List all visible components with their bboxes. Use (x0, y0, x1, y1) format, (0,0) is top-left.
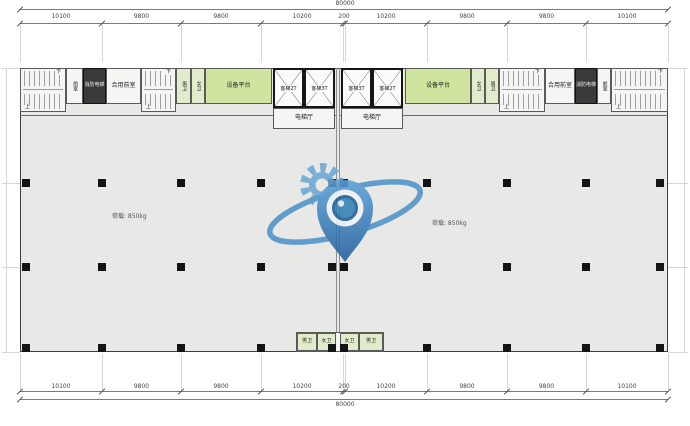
elevator-hall-label: 电梯厅 (363, 115, 381, 121)
shared-anteroom-label: 合用前室 (548, 83, 572, 89)
room-anteroom: 前室 (66, 68, 83, 104)
dim-segment-label: 200 (338, 383, 349, 390)
stairwell: 下 上 (141, 68, 176, 112)
elevator-shaft: 客梯3T (304, 68, 335, 108)
column (98, 263, 106, 271)
stairwell: 下 上 (611, 68, 668, 112)
extension-line (261, 354, 262, 390)
extension-line (507, 354, 508, 390)
side-ref-line (2, 68, 20, 69)
column (656, 344, 664, 352)
side-ref-line (668, 267, 688, 268)
dim-segment-label: 9800 (539, 383, 554, 390)
anteroom-label: 前室 (72, 81, 77, 91)
watermark-eye-location-pin-logo (262, 150, 428, 280)
stair-up-label: 上 (615, 105, 622, 110)
extension-line (181, 25, 182, 62)
room-female-toilet: 女卫 (471, 68, 485, 104)
dim-tick (665, 6, 671, 12)
dim-segment-label: 10200 (376, 13, 395, 20)
stair-down-label: 下 (657, 70, 664, 75)
fire-elevator-label: 消防电梯 (576, 83, 596, 88)
overall-dim-line-bottom (20, 399, 668, 400)
column (98, 344, 106, 352)
overall-dimension-bottom: 80000 (335, 401, 354, 408)
room-elevator-hall-left: 电梯厅 (273, 108, 335, 129)
room-male-toilet: 男卫 (485, 68, 499, 104)
column (503, 263, 511, 271)
column (423, 344, 431, 352)
male-toilet-label: 男卫 (489, 81, 494, 91)
column (98, 179, 106, 187)
dim-segment-label: 200 (338, 13, 349, 20)
extension-line (345, 25, 346, 62)
column (582, 179, 590, 187)
room-female-toilet: 女卫 (191, 68, 205, 104)
room-shared-anteroom: 合用前室 (545, 68, 575, 104)
fire-elevator-label: 消防电梯 (84, 83, 104, 88)
room-equipment-platform-right: 设备平台 (405, 68, 471, 104)
column (582, 344, 590, 352)
eye-iris (334, 197, 357, 220)
dim-segment-label: 9800 (539, 13, 554, 20)
stair-landing-line (502, 89, 542, 90)
male-toilet-label: 男卫 (366, 339, 376, 344)
floor-plan-canvas: 80000 80000 下 上 前室 消防电梯 合用前室 下 上 (0, 0, 690, 426)
room-male-toilet: 男卫 (297, 333, 317, 351)
elevator-label: 客梯2T (378, 85, 396, 92)
column (177, 344, 185, 352)
column (257, 344, 265, 352)
stair-up-label: 上 (145, 105, 152, 110)
stair-treads (615, 94, 664, 109)
column (340, 344, 348, 352)
female-toilet-label: 女卫 (195, 81, 200, 91)
anteroom-label: 前室 (601, 81, 606, 91)
dim-segment-label: 10100 (51, 13, 70, 20)
dim-segment-label: 10100 (617, 13, 636, 20)
side-dim-line-left (6, 68, 7, 352)
column (328, 344, 336, 352)
fire-elevator-shaft: 消防电梯 (83, 68, 106, 104)
dim-segment-label: 9800 (134, 13, 149, 20)
dim-tick (665, 396, 671, 402)
elevator-hall-label: 电梯厅 (295, 115, 313, 121)
stairwell: 下 上 (20, 68, 66, 112)
side-ref-line (2, 183, 20, 184)
dim-segment-label: 9800 (213, 383, 228, 390)
side-ref-line (2, 267, 20, 268)
male-toilet-label: 男卫 (302, 339, 312, 344)
elevator-shaft: 客梯2T (372, 68, 403, 108)
dim-segment-label: 9800 (459, 383, 474, 390)
extension-line (102, 354, 103, 390)
extension-line (427, 354, 428, 390)
column (22, 179, 30, 187)
overall-dim-line-top (20, 9, 668, 10)
fire-elevator-shaft: 消防电梯 (575, 68, 597, 104)
column (656, 179, 664, 187)
extension-line (20, 25, 21, 62)
stairwell: 下 上 (499, 68, 545, 112)
side-ref-line (668, 183, 688, 184)
extension-line (668, 354, 669, 390)
equipment-platform-label: 设备平台 (426, 83, 450, 89)
stair-down-label: 下 (534, 70, 541, 75)
extension-line (586, 354, 587, 390)
column (22, 344, 30, 352)
stair-up-label: 上 (24, 105, 31, 110)
extension-line (668, 25, 669, 62)
shared-anteroom-label: 合用前室 (111, 83, 135, 89)
room-shared-anteroom: 合用前室 (106, 68, 141, 104)
extension-line (586, 25, 587, 62)
extension-line (261, 25, 262, 62)
column (22, 263, 30, 271)
side-ref-line (668, 352, 688, 353)
column (503, 179, 511, 187)
dim-segment-label: 9800 (459, 13, 474, 20)
dim-segment-label: 10200 (376, 383, 395, 390)
stair-down-label: 下 (165, 70, 172, 75)
extension-line (102, 25, 103, 62)
room-elevator-hall-right: 电梯厅 (341, 108, 403, 129)
column (503, 344, 511, 352)
dim-segment-label: 10200 (292, 13, 311, 20)
extension-line (507, 25, 508, 62)
elevator-label: 客梯3T (310, 85, 328, 92)
dim-tick (665, 388, 671, 394)
load-note-left: 荷载: 850kg (112, 211, 147, 220)
extension-line (343, 25, 344, 62)
side-ref-line (2, 352, 20, 353)
stair-landing-line (144, 89, 173, 90)
extension-line (20, 354, 21, 390)
column (656, 263, 664, 271)
elevator-shaft: 客梯2T (273, 68, 304, 108)
room-anteroom: 前室 (597, 68, 611, 104)
room-male-toilet: 男卫 (359, 333, 383, 351)
stair-up-label: 上 (503, 105, 510, 110)
room-equipment-platform-left: 设备平台 (205, 68, 272, 104)
stair-landing-line (614, 89, 665, 90)
side-dim-line-right (684, 68, 685, 352)
elevator-shaft: 客梯3T (341, 68, 372, 108)
room-male-toilet: 男卫 (176, 68, 191, 104)
column (177, 179, 185, 187)
dim-segment-label: 10100 (51, 383, 70, 390)
overall-dimension-top: 80000 (335, 0, 354, 7)
equipment-platform-label: 设备平台 (226, 83, 250, 89)
stair-down-label: 下 (55, 70, 62, 75)
dim-segment-label: 9800 (134, 383, 149, 390)
male-toilet-label: 男卫 (181, 81, 186, 91)
column (582, 263, 590, 271)
female-toilet-label: 女卫 (475, 81, 480, 91)
dim-segment-label: 9800 (213, 13, 228, 20)
eye-highlight (338, 200, 344, 206)
column (177, 263, 185, 271)
load-note-right: 荷载: 850kg (432, 218, 467, 227)
stair-landing-line (23, 89, 63, 90)
elevator-label: 客梯3T (347, 85, 365, 92)
dim-segment-label: 10200 (292, 383, 311, 390)
extension-line (181, 354, 182, 390)
elevator-label: 客梯2T (279, 85, 297, 92)
dim-segment-label: 10100 (617, 383, 636, 390)
side-ref-line (668, 68, 688, 69)
extension-line (427, 25, 428, 62)
